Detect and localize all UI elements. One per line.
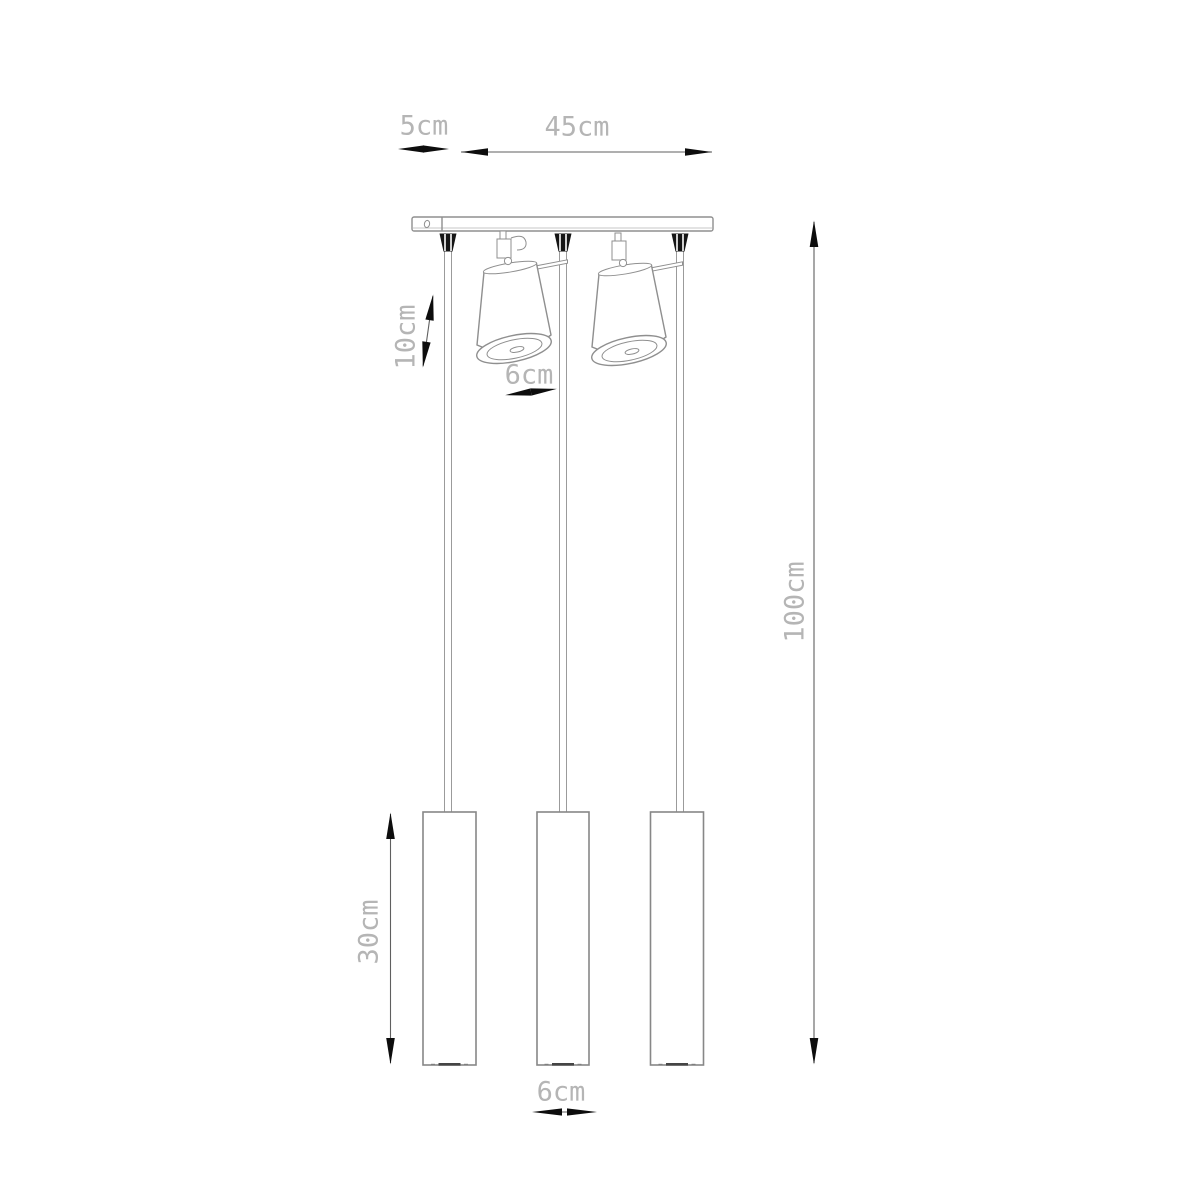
arrow-down-icon	[810, 1038, 819, 1065]
dim-label-tube-length: 30cm	[354, 899, 385, 964]
dim-spot-diameter: 6cm	[505, 360, 558, 399]
dim-canopy-offset: 5cm	[398, 111, 449, 153]
cable-2	[560, 251, 567, 812]
dim-spot-length: 10cm	[391, 294, 438, 370]
dim-tube-length: 30cm	[354, 813, 395, 1065]
spotlight-1	[474, 231, 567, 369]
arrow-up-icon	[425, 294, 437, 321]
dim-label-spot-length: 10cm	[391, 304, 422, 369]
pendant-tube-2	[537, 812, 589, 1065]
technical-drawing-canvas: 5cm 45cm 10cm 6cm 100cm	[0, 0, 1200, 1200]
pendant-tube-3	[651, 812, 704, 1065]
spotlight-2	[589, 233, 682, 371]
pendant-tube-1	[423, 812, 476, 1065]
dim-canopy-width: 45cm	[461, 112, 712, 156]
cable-3	[677, 251, 684, 812]
arrow-right-icon	[567, 1108, 597, 1115]
dim-drop-height: 100cm	[780, 221, 819, 1065]
dim-label-tube-diameter: 6cm	[537, 1077, 586, 1108]
cable-grip-3	[672, 234, 689, 252]
dim-label-drop-height: 100cm	[780, 561, 811, 642]
dim-tube-diameter: 6cm	[532, 1077, 597, 1116]
arrow-up-icon	[810, 221, 819, 248]
arrow-right-icon	[423, 145, 449, 152]
arrow-right-icon	[685, 148, 712, 156]
cable-grip-2	[555, 234, 572, 252]
arrow-left-icon	[461, 148, 488, 156]
arrow-left-icon	[532, 1108, 562, 1115]
locking-lever	[511, 236, 526, 250]
cable-1	[445, 251, 452, 812]
dim-label-spot-diameter: 6cm	[505, 360, 554, 391]
pendant-lamp-dimension-diagram: 5cm 45cm 10cm 6cm 100cm	[0, 0, 1200, 1200]
cable-grips	[440, 234, 689, 252]
canopy-bar	[412, 217, 713, 231]
dim-label-canopy-offset: 5cm	[400, 111, 449, 142]
ceiling-canopy	[412, 217, 713, 231]
arrow-left-icon	[398, 145, 424, 152]
cable-grip-1	[440, 234, 457, 252]
dim-label-canopy-width: 45cm	[544, 112, 609, 143]
arrow-up-icon	[386, 813, 395, 840]
pendant-tubes	[423, 812, 704, 1065]
arrow-down-icon	[386, 1038, 395, 1065]
